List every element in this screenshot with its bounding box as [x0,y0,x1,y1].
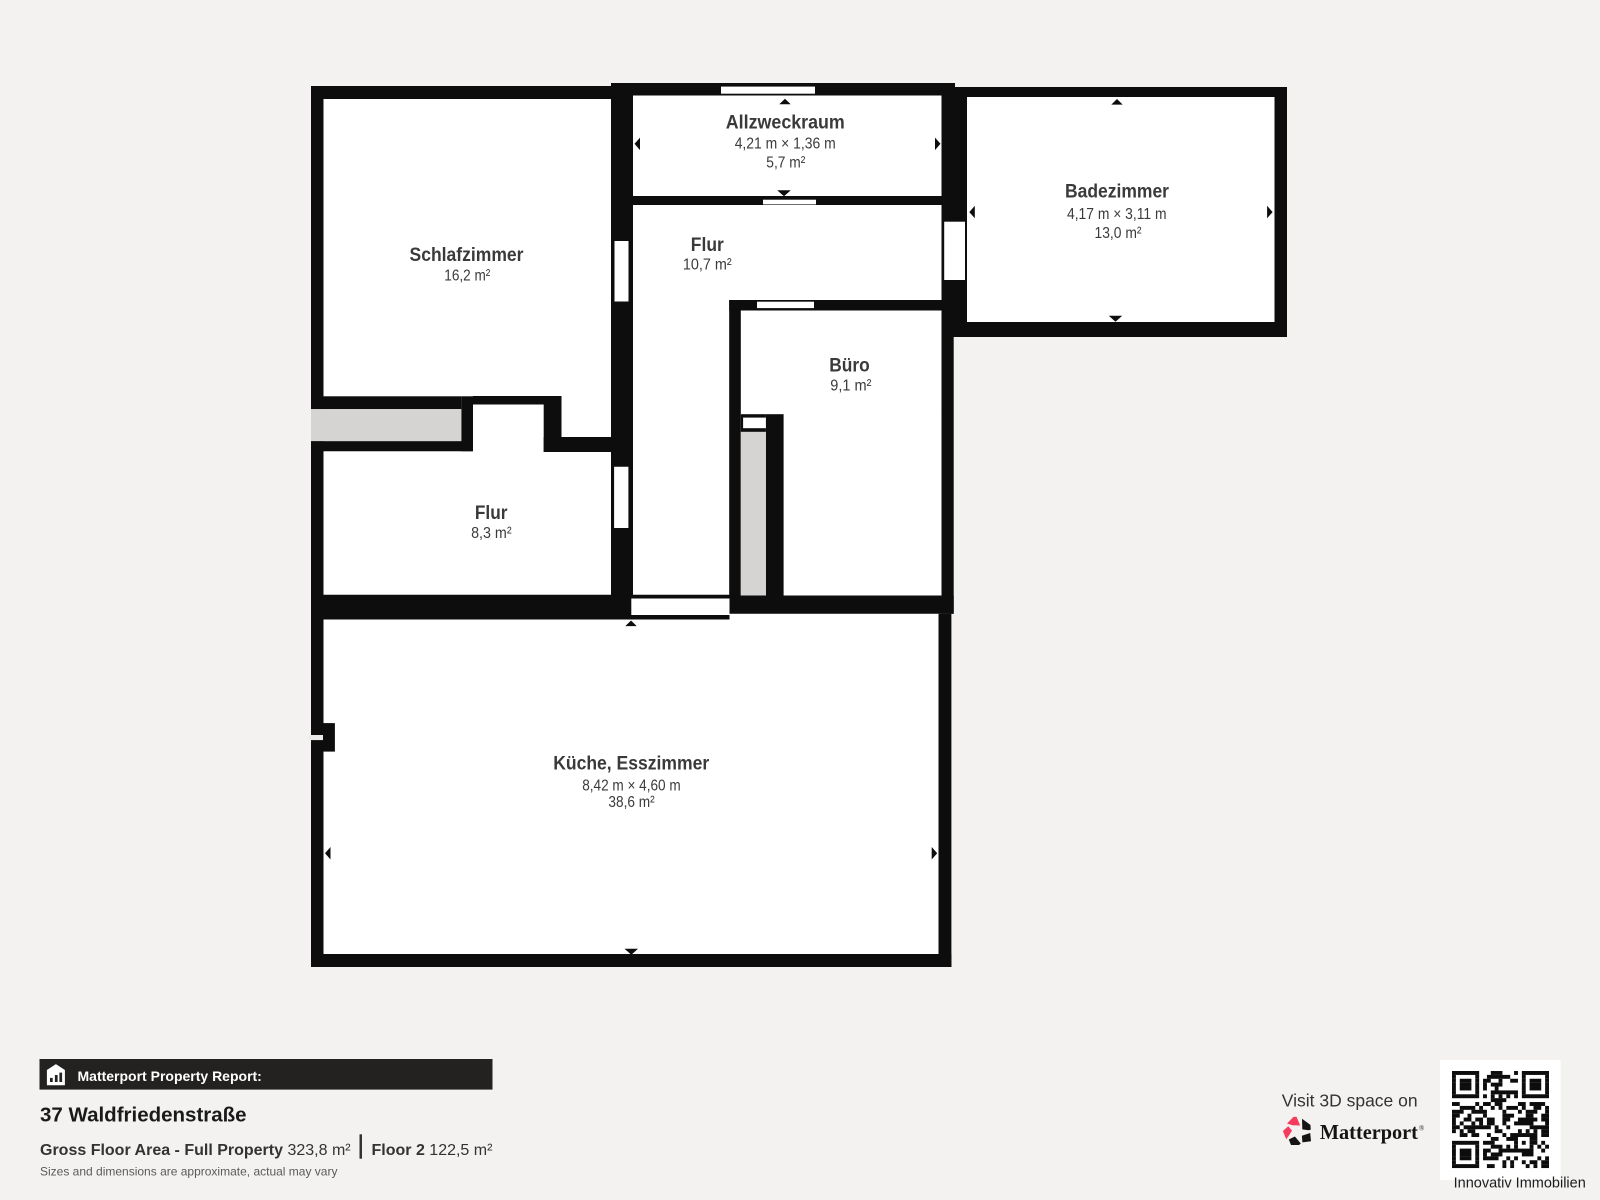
svg-text:8,3 m²: 8,3 m² [471,525,512,542]
svg-text:Büro: Büro [829,356,870,377]
svg-text:9,1 m²: 9,1 m² [830,378,872,395]
svg-text:Küche, Esszimmer: Küche, Esszimmer [553,754,710,775]
svg-text:38,6 m²: 38,6 m² [608,794,655,811]
svg-text:Badezimmer: Badezimmer [1065,182,1170,203]
svg-text:Flur: Flur [475,503,508,524]
svg-text:Visit 3D space on: Visit 3D space on [1282,1091,1418,1111]
svg-text:Schlafzimmer: Schlafzimmer [410,245,525,266]
svg-text:Matterport Property Report:: Matterport Property Report: [78,1068,262,1084]
svg-text:10,7 m²: 10,7 m² [683,257,732,274]
svg-text:®: ® [1419,1125,1425,1133]
svg-text:37 Waldfriedenstraße: 37 Waldfriedenstraße [40,1104,247,1127]
svg-text:Allzweckraum: Allzweckraum [726,113,845,134]
svg-text:13,0 m²: 13,0 m² [1095,225,1143,242]
svg-text:Innovativ Immobilien: Innovativ Immobilien [1454,1176,1586,1192]
svg-text:5,7 m²: 5,7 m² [766,155,806,172]
svg-text:Floor 2 122,5 m²: Floor 2 122,5 m² [372,1142,494,1159]
svg-text:Matterport: Matterport [1320,1120,1419,1144]
svg-text:8,42 m × 4,60 m: 8,42 m × 4,60 m [582,778,681,795]
svg-text:16,2 m²: 16,2 m² [444,268,491,285]
svg-text:Flur: Flur [691,235,725,256]
svg-text:4,21 m × 1,36 m: 4,21 m × 1,36 m [735,136,836,153]
svg-text:Gross Floor Area - Full Proper: Gross Floor Area - Full Property 323,8 m… [40,1142,351,1159]
svg-text:Sizes and dimensions are appro: Sizes and dimensions are approximate, ac… [40,1165,337,1179]
svg-text:4,17 m × 3,11 m: 4,17 m × 3,11 m [1067,206,1167,223]
